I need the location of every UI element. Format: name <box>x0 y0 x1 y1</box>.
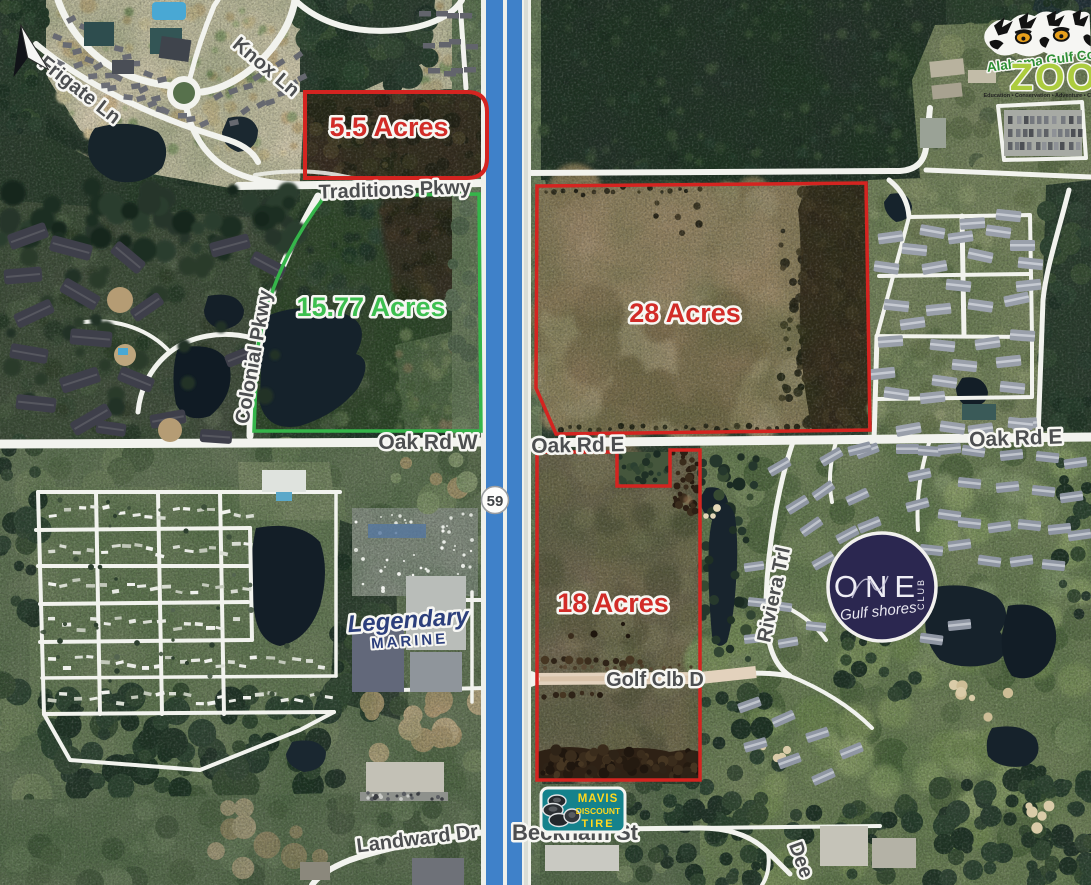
svg-text:18 Acres: 18 Acres <box>557 588 669 618</box>
svg-text:Oak Rd E: Oak Rd E <box>969 425 1063 451</box>
svg-text:Oak Rd E: Oak Rd E <box>531 433 625 458</box>
svg-text:15.77 Acres: 15.77 Acres <box>296 292 445 322</box>
svg-text:CLUB: CLUB <box>916 578 926 610</box>
svg-text:ONE: ONE <box>834 569 922 604</box>
svg-text:Education • Conservation • Adv: Education • Conservation • Adventure • C… <box>983 93 1091 99</box>
svg-text:DISCOUNT: DISCOUNT <box>576 806 621 816</box>
svg-text:59: 59 <box>487 493 504 510</box>
svg-text:MAVIS: MAVIS <box>578 793 619 805</box>
svg-text:Golf Clb D: Golf Clb D <box>606 669 704 691</box>
svg-text:TIRE: TIRE <box>581 818 614 830</box>
svg-text:Oak Rd W: Oak Rd W <box>378 431 477 454</box>
svg-text:28 Acres: 28 Acres <box>629 298 741 328</box>
svg-text:5.5 Acres: 5.5 Acres <box>329 112 448 142</box>
